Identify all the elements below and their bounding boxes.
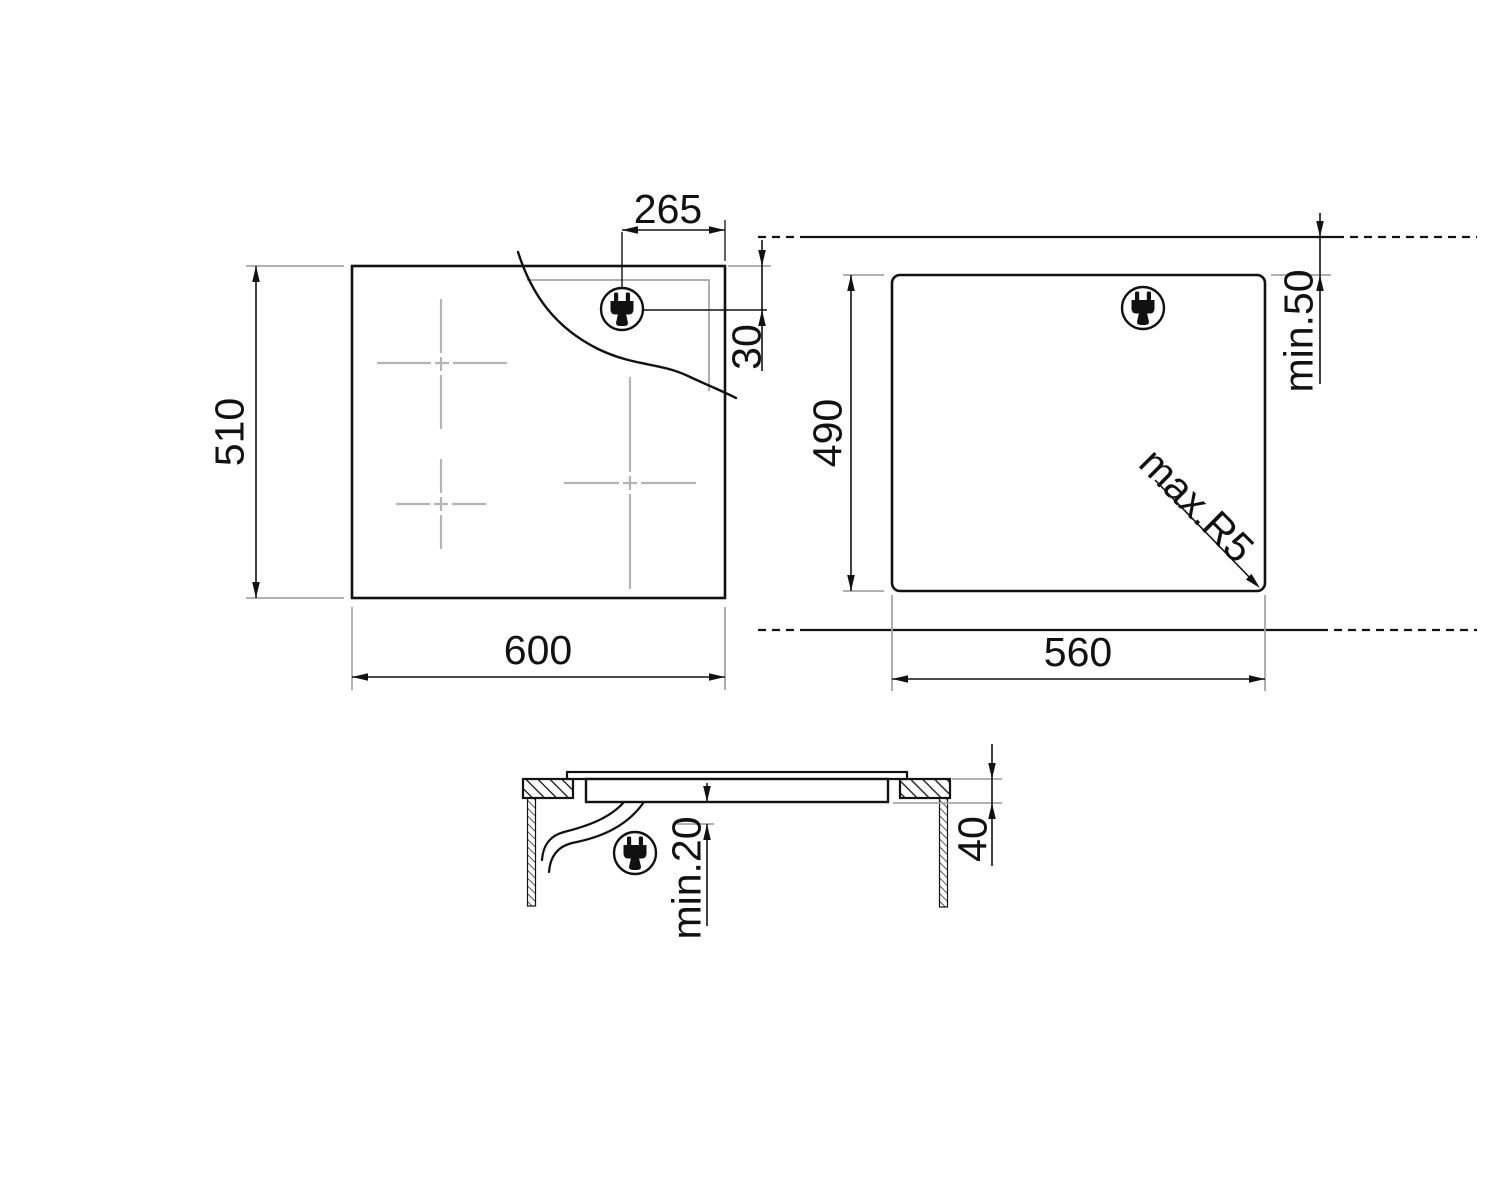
- dim-back-clearance: min.50: [1271, 213, 1331, 393]
- dim-label-maxR5: max.R5: [1131, 439, 1263, 571]
- installation-drawing-page: 265 30 510 600: [0, 0, 1500, 1199]
- power-plug-icon: [1122, 287, 1164, 329]
- dim-label-600: 600: [504, 627, 572, 673]
- dim-plug-offset: 265: [622, 186, 725, 261]
- dim-label-560: 560: [1044, 629, 1112, 675]
- dim-plug-drop: 30: [723, 240, 771, 371]
- corner-radius-callout: max.R5: [1131, 439, 1263, 588]
- dim-label-min20: min.20: [663, 816, 709, 939]
- hob-outline: [352, 266, 725, 598]
- dim-hob-depth: 510: [206, 266, 344, 598]
- dim-label-510: 510: [206, 398, 252, 466]
- power-plug-icon: [614, 832, 656, 874]
- cabinet-wall-left: [528, 798, 536, 906]
- dim-clearance-below: min.20: [663, 783, 714, 940]
- dim-label-40: 40: [949, 816, 995, 862]
- dim-label-490: 490: [804, 399, 850, 467]
- dim-cutout-width: 560: [892, 595, 1265, 691]
- cabinet-wall-right: [940, 798, 948, 907]
- section-view: min.20 40: [523, 744, 1002, 940]
- hob-top-view: 265 30 510 600: [206, 186, 771, 690]
- worktop-section-right: [900, 779, 950, 798]
- dim-label-265: 265: [634, 186, 702, 232]
- dim-cutout-depth: 490: [804, 275, 884, 591]
- burner-center-marks: [377, 299, 697, 589]
- dim-hob-width: 600: [352, 607, 725, 690]
- dim-label-min50: min.50: [1275, 269, 1321, 392]
- hob-body-section: [586, 779, 888, 802]
- installation-diagram: 265 30 510 600: [0, 0, 1500, 1199]
- dim-label-30: 30: [723, 324, 769, 370]
- worktop-cutout-view: 490 min.50 max.R5 560: [758, 213, 1477, 691]
- worktop-section-left: [523, 779, 573, 798]
- power-plug-icon: [601, 288, 643, 330]
